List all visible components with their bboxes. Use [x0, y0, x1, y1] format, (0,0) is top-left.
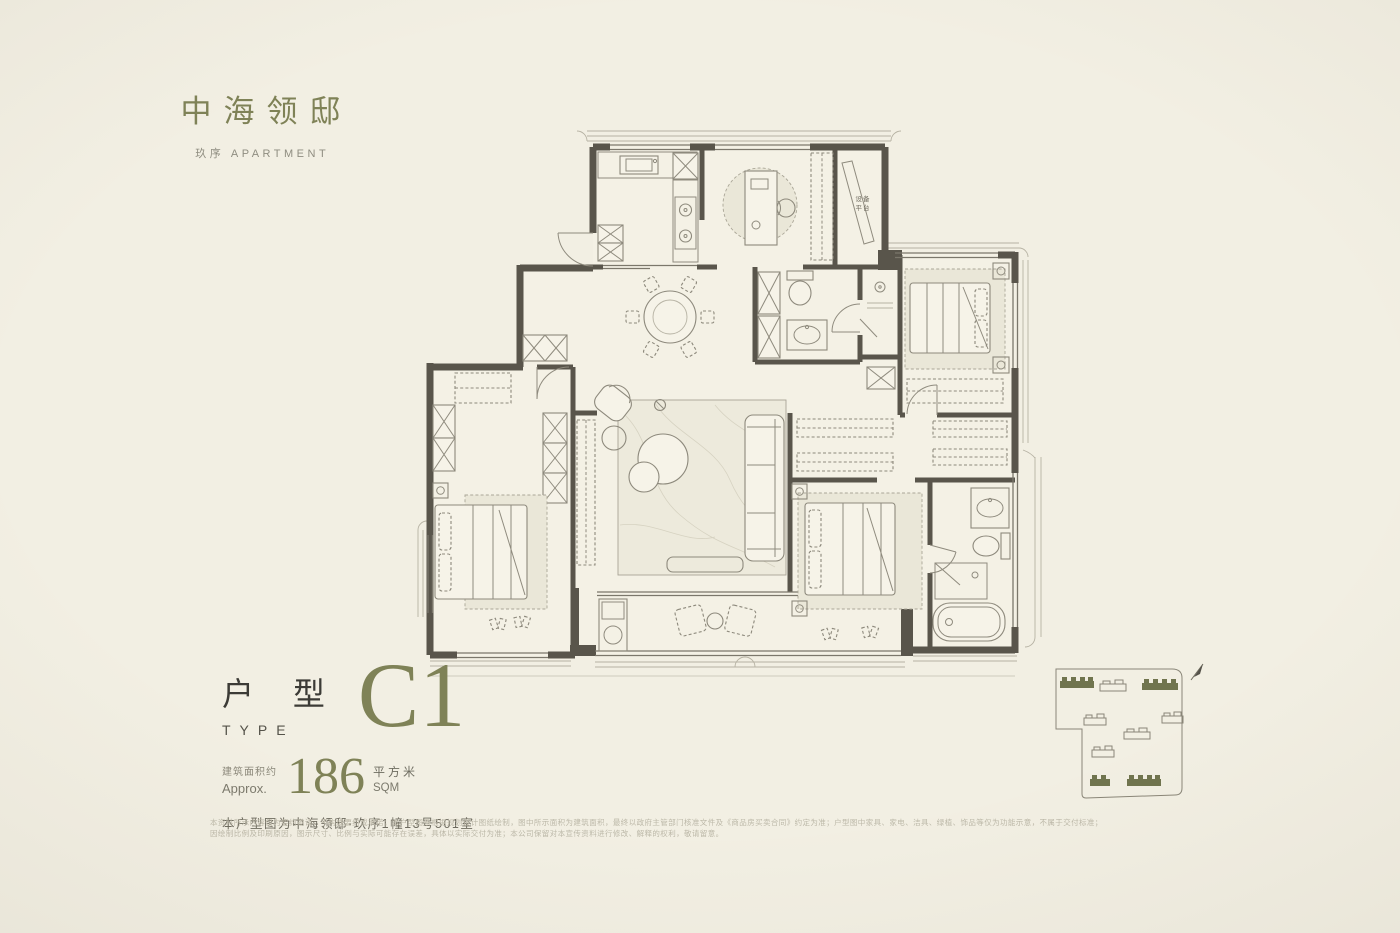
type-label-en: TYPE — [222, 722, 340, 738]
brand-subtitle: 玖序 APARTMENT — [168, 145, 357, 161]
west-wardrobe-left — [433, 405, 455, 471]
area-value: 186 — [287, 754, 365, 801]
brand-name: 中海领邸 — [168, 86, 365, 131]
sofa — [745, 415, 784, 561]
area-row: 建筑面积约 Approx. 186 平方米 SQM — [222, 754, 542, 801]
west-wardrobe-right — [543, 413, 567, 503]
kitchen-cabinets — [598, 225, 623, 261]
keyplan-container — [1042, 652, 1207, 812]
disclaimer: 本资料所示内容仅为要约邀请，不构成要约或承诺；本户型图系根据规划设计图纸绘制，图… — [210, 817, 1198, 839]
north-arrow-icon — [1191, 664, 1203, 680]
area-unit-en: SQM — [373, 782, 418, 794]
building-highlighted — [1060, 677, 1178, 786]
equipment-platform-label-2: 平台 — [856, 203, 871, 212]
type-label-cn: 户 型 — [222, 669, 340, 715]
hallway — [867, 367, 895, 389]
west-bed — [435, 505, 527, 599]
dining-table — [644, 291, 696, 343]
type-code: C1 — [358, 655, 465, 736]
floorplan-poster: 中海领邸 玖序 APARTMENT — [0, 0, 1400, 933]
disclaimer-line-1: 本资料所示内容仅为要约邀请，不构成要约或承诺；本户型图系根据规划设计图纸绘制，图… — [210, 818, 1103, 827]
area-label-en: Approx. — [222, 781, 277, 796]
coffee-table-small — [629, 462, 659, 492]
equipment-platform-label-1: 设备 — [856, 194, 871, 203]
desk — [745, 171, 777, 245]
type-row: 户 型 TYPE C1 — [222, 655, 542, 738]
area-unit-cn: 平方米 — [373, 763, 418, 780]
bathtub — [933, 603, 1005, 641]
brand-block: 中海领邸 玖序 APARTMENT — [168, 86, 353, 161]
disclaimer-line-2: 因绘制比例及印刷原因，图示尺寸、比例与实际可能存在误差，具体以实际交付为准；本公… — [210, 829, 724, 838]
floorplan-drawing: 设备 平台 — [415, 105, 1055, 685]
floorplan-container: 设备 平台 — [415, 105, 1055, 685]
site-key-plan — [1042, 652, 1207, 812]
entry-door — [558, 233, 593, 266]
master-bed — [805, 503, 895, 595]
area-label-cn: 建筑面积约 — [222, 763, 277, 778]
bedroom-east-bed — [910, 283, 990, 353]
unit-info: 户 型 TYPE C1 建筑面积约 Approx. 186 平方米 SQM 本户… — [222, 655, 542, 832]
foyer-sideboard — [523, 335, 567, 361]
building-outline — [1084, 680, 1183, 757]
